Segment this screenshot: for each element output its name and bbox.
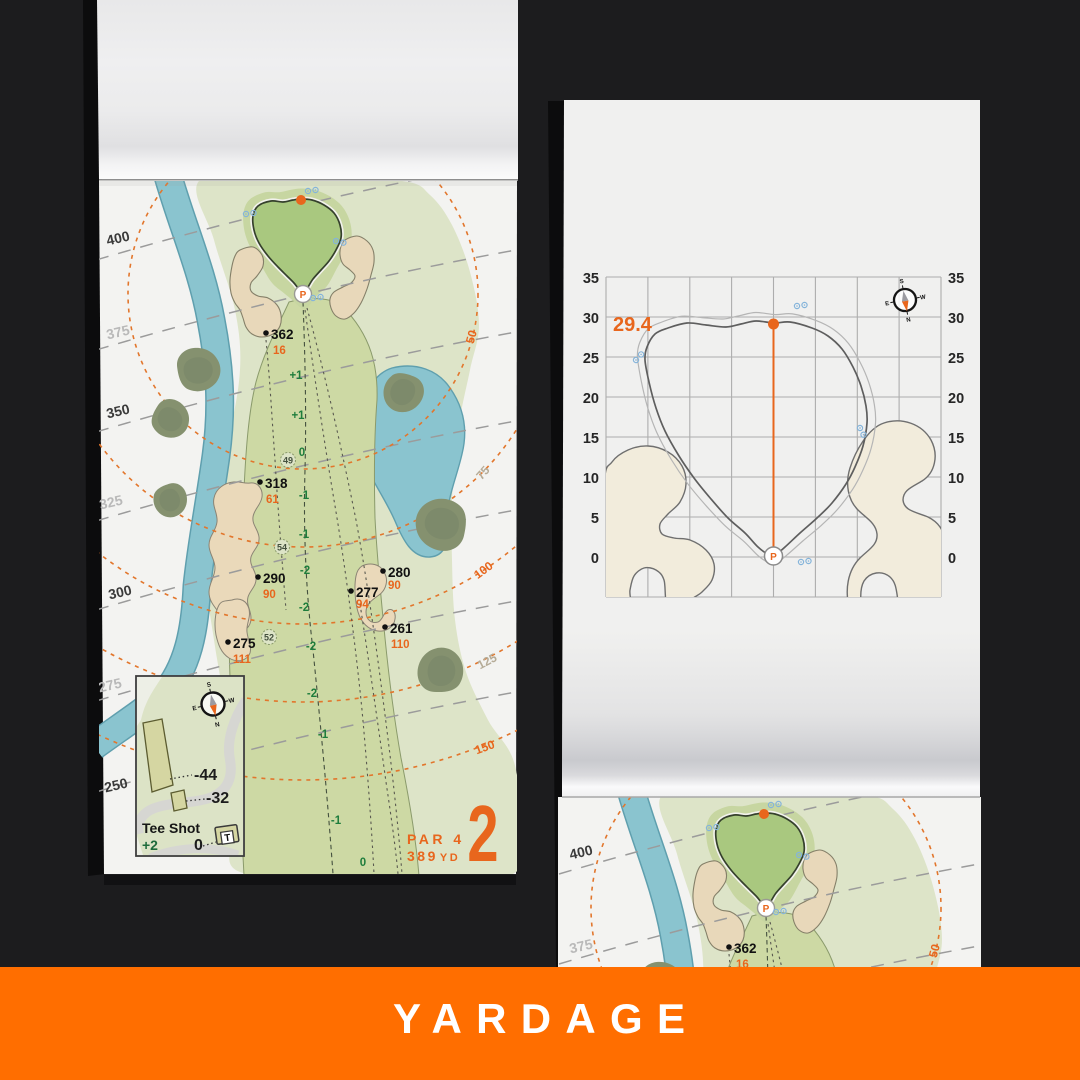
svg-text:15: 15 bbox=[583, 431, 599, 447]
svg-text:10: 10 bbox=[583, 471, 599, 487]
svg-text:29.4: 29.4 bbox=[613, 314, 653, 336]
svg-text:25: 25 bbox=[583, 351, 599, 367]
svg-text:30: 30 bbox=[948, 311, 964, 327]
svg-text:35: 35 bbox=[583, 271, 599, 287]
svg-text:20: 20 bbox=[583, 391, 599, 407]
svg-text:5: 5 bbox=[591, 511, 599, 527]
svg-text:10: 10 bbox=[948, 471, 964, 487]
svg-text:YARDAGE: YARDAGE bbox=[393, 995, 699, 1042]
svg-text:15: 15 bbox=[948, 431, 964, 447]
svg-text:5: 5 bbox=[948, 511, 956, 527]
svg-text:0: 0 bbox=[591, 551, 599, 567]
svg-text:0: 0 bbox=[948, 551, 956, 567]
svg-text:20: 20 bbox=[948, 391, 964, 407]
svg-text:35: 35 bbox=[948, 271, 964, 287]
svg-text:P: P bbox=[770, 552, 777, 563]
svg-text:25: 25 bbox=[948, 351, 964, 367]
svg-text:30: 30 bbox=[583, 311, 599, 327]
